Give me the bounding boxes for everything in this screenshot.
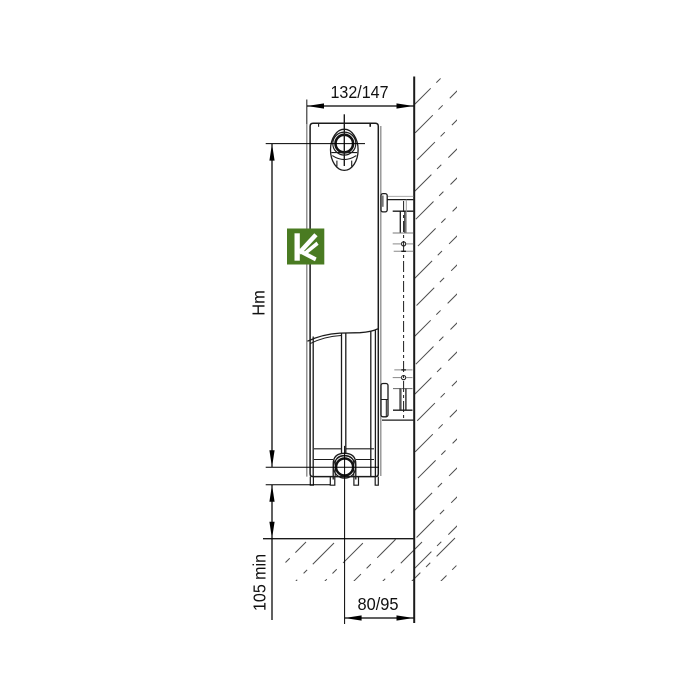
svg-text:Hm: Hm	[249, 290, 269, 316]
svg-text:80/95: 80/95	[358, 594, 399, 614]
svg-text:132/147: 132/147	[331, 82, 389, 102]
svg-text:105 min: 105 min	[249, 554, 269, 611]
